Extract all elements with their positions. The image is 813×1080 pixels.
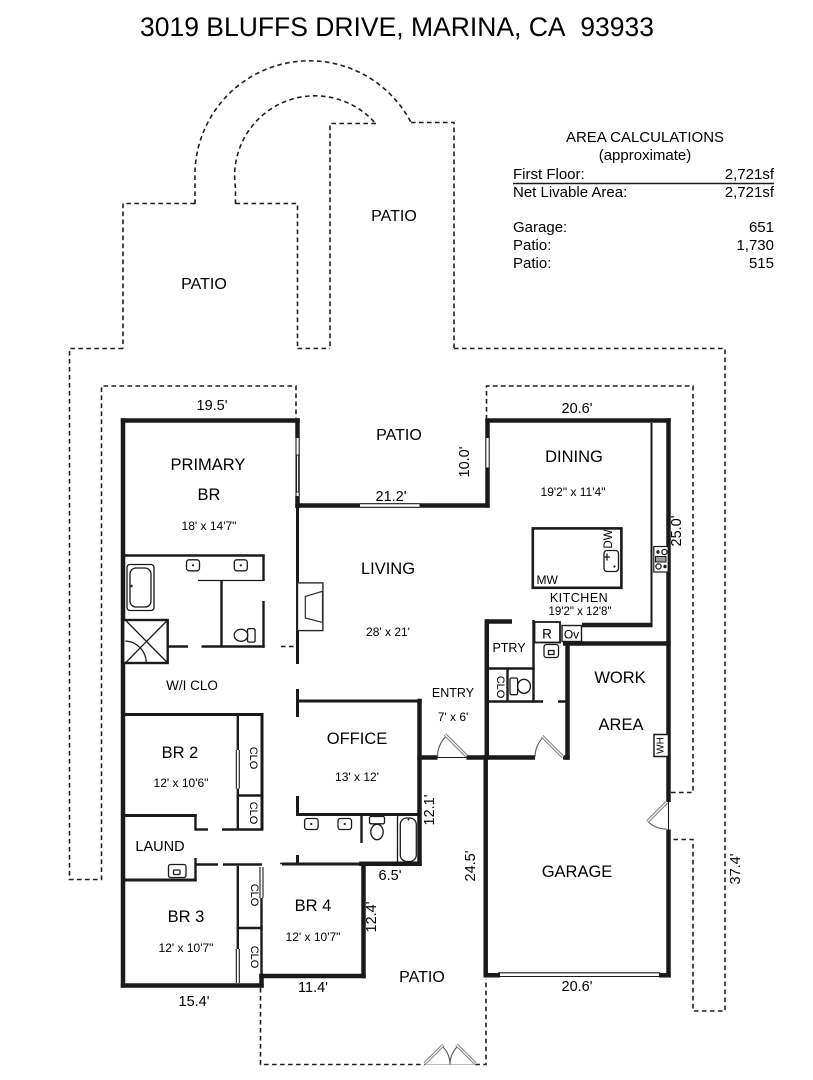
svg-text:PRIMARY: PRIMARY <box>171 456 246 474</box>
svg-text:WH: WH <box>656 737 667 754</box>
svg-text:BR 3: BR 3 <box>168 908 205 926</box>
svg-text:W/I CLO: W/I CLO <box>166 678 218 693</box>
svg-text:PATIO: PATIO <box>399 969 445 986</box>
svg-text:DINING: DINING <box>545 448 603 466</box>
svg-text:Ov: Ov <box>564 628 579 642</box>
svg-text:37.4': 37.4' <box>728 853 744 884</box>
svg-text:7' x 6': 7' x 6' <box>438 710 469 724</box>
svg-text:19'2" x 11'4": 19'2" x 11'4" <box>541 485 606 499</box>
svg-text:10.0': 10.0' <box>457 446 473 477</box>
svg-text:20.6': 20.6' <box>562 979 593 995</box>
svg-text:PATIO: PATIO <box>376 427 422 444</box>
svg-text:PTRY: PTRY <box>492 641 526 655</box>
svg-text:PATIO: PATIO <box>371 208 417 225</box>
svg-text:21.2': 21.2' <box>376 489 407 505</box>
svg-text:WORK: WORK <box>594 669 645 687</box>
svg-text:Net Livable Area:: Net Livable Area: <box>513 184 627 201</box>
svg-text:First Floor:: First Floor: <box>513 166 585 183</box>
svg-text:(approximate): (approximate) <box>599 147 692 164</box>
svg-text:28' x 21': 28' x 21' <box>366 625 410 639</box>
svg-text:19'2" x 12'8": 19'2" x 12'8" <box>548 606 611 618</box>
svg-text:12' x 10'6": 12' x 10'6" <box>154 776 209 790</box>
svg-text:15.4': 15.4' <box>179 994 210 1010</box>
svg-text:24.5': 24.5' <box>463 850 479 881</box>
svg-text:12.1': 12.1' <box>422 794 438 825</box>
svg-text:1,730: 1,730 <box>736 237 774 254</box>
svg-text:2,721sf: 2,721sf <box>725 184 775 201</box>
svg-text:12.4': 12.4' <box>364 901 380 932</box>
svg-text:Garage:: Garage: <box>513 219 567 236</box>
svg-text:LAUND: LAUND <box>135 839 184 855</box>
svg-text:BR 2: BR 2 <box>162 744 199 762</box>
svg-text:6.5': 6.5' <box>379 868 402 884</box>
svg-text:11.4': 11.4' <box>298 980 328 996</box>
svg-text:3019 BLUFFS DRIVE, MARINA, CA: 3019 BLUFFS DRIVE, MARINA, CA 93933 <box>140 12 654 42</box>
svg-text:Patio:: Patio: <box>513 255 551 272</box>
svg-text:515: 515 <box>749 255 774 272</box>
svg-text:DW: DW <box>603 529 615 548</box>
svg-text:13' x 12': 13' x 12' <box>335 770 379 784</box>
svg-text:AREA CALCULATIONS: AREA CALCULATIONS <box>566 129 724 146</box>
svg-text:25.0': 25.0' <box>669 515 685 546</box>
svg-text:12' x 10'7": 12' x 10'7" <box>286 930 341 944</box>
svg-text:KITCHEN: KITCHEN <box>550 591 608 605</box>
svg-text:CLO: CLO <box>248 884 260 907</box>
svg-text:Patio:: Patio: <box>513 237 551 254</box>
svg-text:19.5': 19.5' <box>197 398 228 414</box>
svg-text:BR 4: BR 4 <box>295 897 332 915</box>
svg-text:GARAGE: GARAGE <box>542 863 613 881</box>
svg-text:CLO: CLO <box>247 747 259 770</box>
svg-text:CLO: CLO <box>247 802 259 825</box>
svg-text:ENTRY: ENTRY <box>432 686 475 700</box>
svg-text:LIVING: LIVING <box>361 560 415 578</box>
svg-text:CLO: CLO <box>248 946 260 969</box>
svg-text:OFFICE: OFFICE <box>327 730 388 748</box>
svg-text:12' x 10'7": 12' x 10'7" <box>159 941 214 955</box>
svg-text:2,721sf: 2,721sf <box>725 166 775 183</box>
svg-text:AREA: AREA <box>599 716 644 734</box>
svg-text:651: 651 <box>749 219 774 236</box>
svg-text:R: R <box>542 627 552 642</box>
svg-text:20.6': 20.6' <box>562 401 593 417</box>
svg-text:18' x 14'7": 18' x 14'7" <box>182 519 237 533</box>
svg-text:PATIO: PATIO <box>181 276 227 293</box>
svg-text:BR: BR <box>198 486 221 504</box>
svg-text:CLO: CLO <box>494 676 506 699</box>
svg-text:MW: MW <box>537 573 559 587</box>
